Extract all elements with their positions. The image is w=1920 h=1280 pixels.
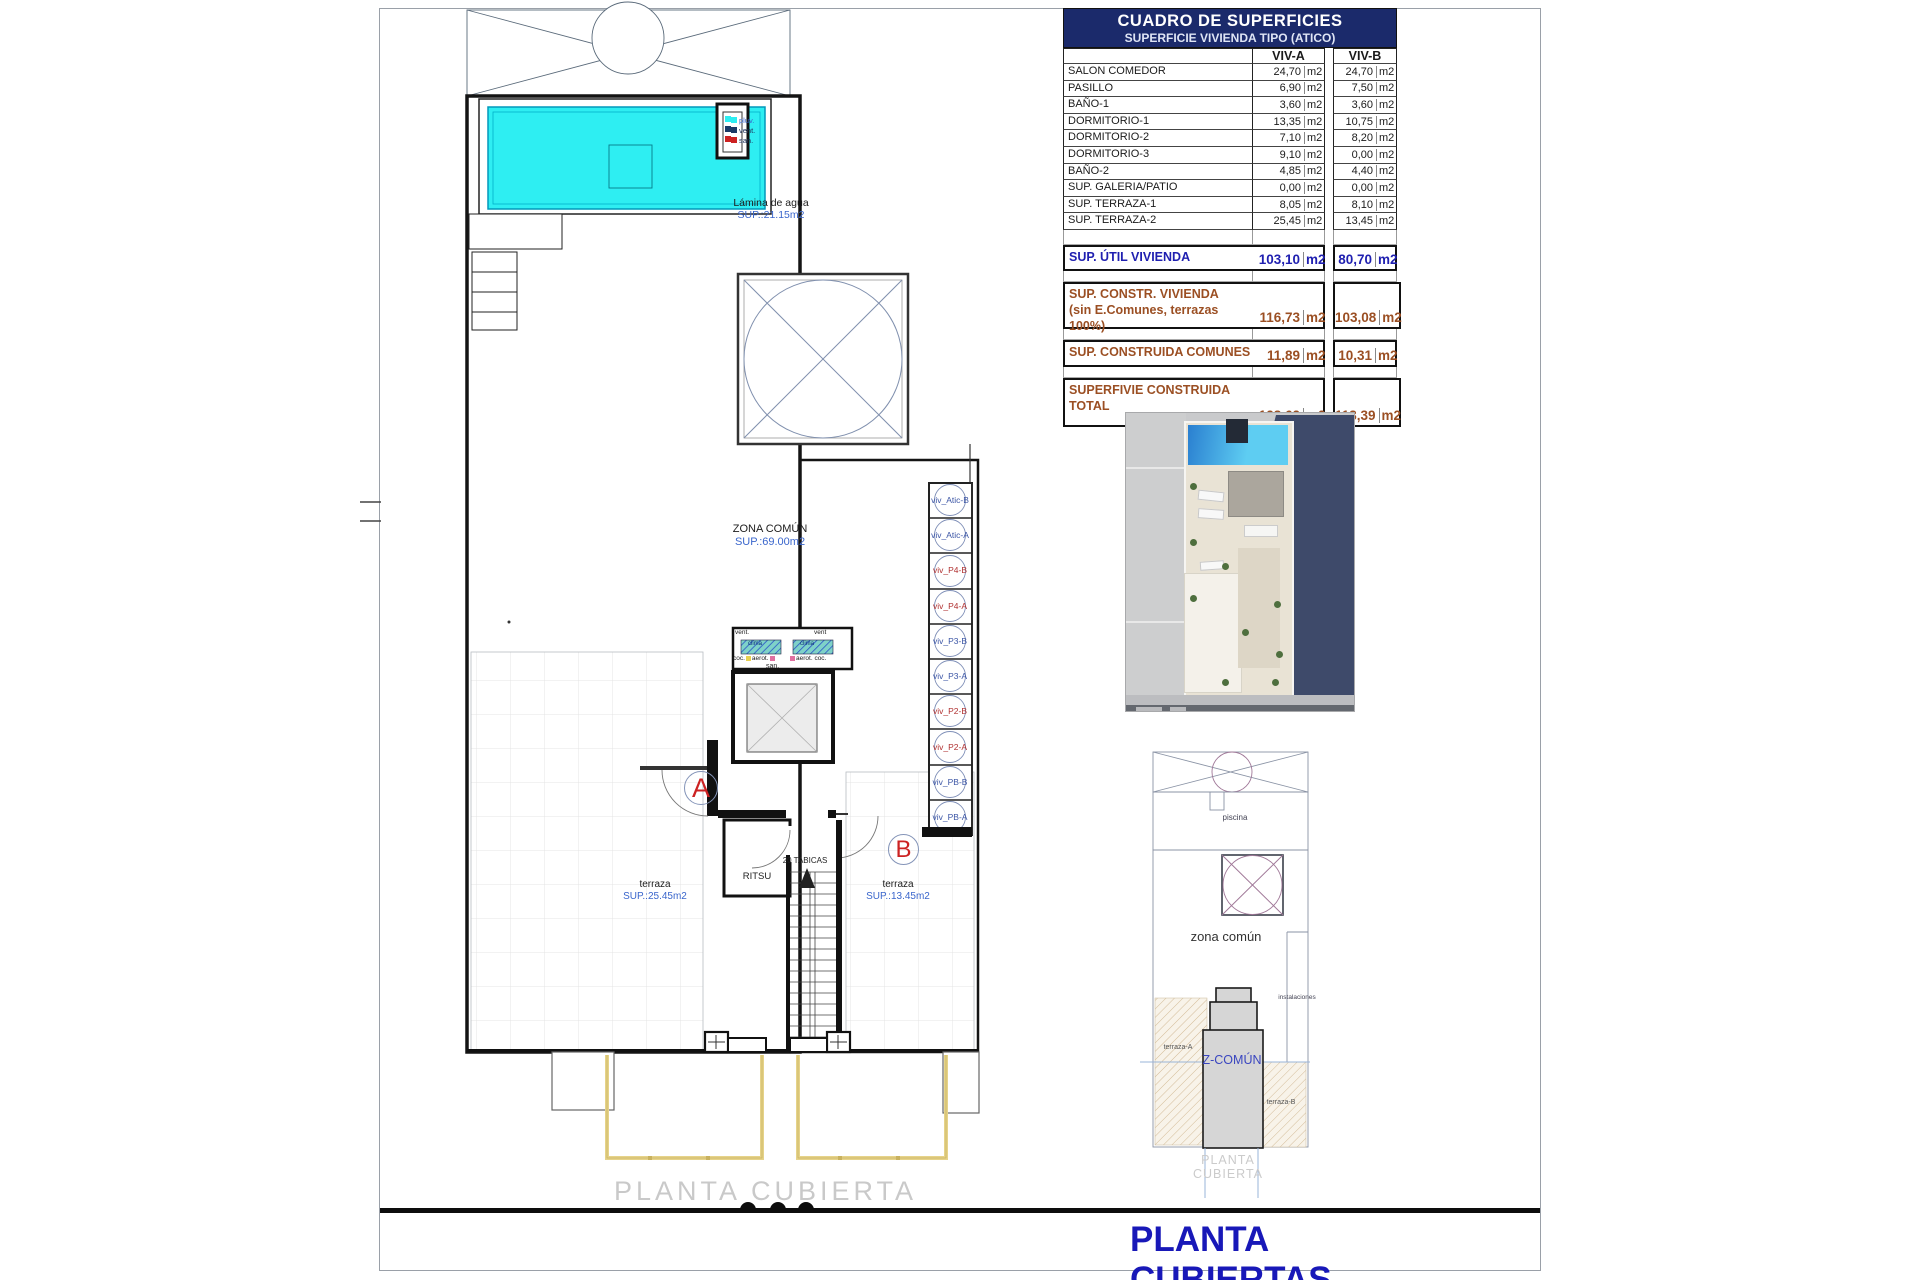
terraza-left-area: SUP.:25.45m2 [595,891,715,903]
strip-label-atic-b: viv_Atic-B [924,495,976,505]
table-spacer [1063,230,1397,245]
pergola-top [467,2,790,96]
render-skylight-box [1228,471,1284,517]
zona-comun-area: SUP.:69.00m2 [705,536,835,549]
render-plant [1274,601,1281,608]
equip-row-left: coc.aerot. [733,655,776,662]
equipment-box [733,628,852,669]
equip-vent-right: vent [814,629,826,636]
strip-label-p2-a: viv_P2-A [924,742,976,752]
terraza-right-area: SUP.:13.45m2 [838,891,958,903]
render-plant [1190,539,1197,546]
mini-terraza-b-label: terraza-B [1253,1099,1309,1107]
table-row: SALON COMEDOR24,70m224,70m2 [1063,64,1397,81]
section-ticks [360,502,381,521]
surface-table: CUADRO DE SUPERFICIES SUPERFICIE VIVIEND… [1063,8,1397,427]
plan-dot [508,621,511,624]
table-row: DORMITORIO-39,10m20,00m2 [1063,147,1397,164]
mini-zcomun-shape [1203,988,1263,1148]
table-row: DORMITORIO-27,10m28,20m2 [1063,130,1397,147]
shaft-legend: pluv. vent. san. [731,115,771,145]
table-row: BAÑO-13,60m23,60m2 [1063,97,1397,114]
equip-aerot-right: aerot. [796,655,813,662]
plan-caption: PLANTA CUBIERTA [593,1176,938,1207]
pool-label-area: SUP.:21.15m2 [706,209,836,221]
table-column-header: VIV-A VIV-B [1063,48,1397,64]
zona-comun-label: ZONA COMÚN SUP.:69.00m2 [705,523,835,548]
strip-label-p3-a: viv_P3-A [924,671,976,681]
render-plant [1222,563,1229,570]
terraza-left-name: terraza [639,879,670,890]
table-subtitle: SUPERFICIE VIVIENDA TIPO (ATICO) [1064,31,1396,45]
table-row: BAÑO-24,85m24,40m2 [1063,164,1397,181]
zona-comun-name: ZONA COMÚN [733,523,808,535]
patio-skylight [738,274,908,444]
mini-terraza-a-label: terraza-A [1150,1044,1206,1052]
pluv-icon [731,117,737,123]
scale-bar-line [380,1208,1540,1213]
terraza-left-tiles [471,652,703,1050]
equip-pink-icon-2 [790,656,795,661]
strip-label-p4-a: viv_P4-A [924,601,976,611]
terraza-right-name: terraza [882,879,913,890]
equip-coc-left: coc. [733,655,745,662]
table-row: SUP. GALERIA/PATIO0,00m20,00m2 [1063,180,1397,197]
vent-icon [731,127,737,133]
terraza-left-label: terraza SUP.:25.45m2 [595,879,715,902]
render-plant [1222,679,1229,686]
render-chimney [1226,419,1248,443]
render-table [1244,525,1278,537]
render-plant [1272,679,1279,686]
render-core-roof [1184,573,1242,693]
mini-piscina-label: piscina [1195,813,1275,822]
equip-coc-right: coc. [814,655,826,662]
section-marker-b: B [888,834,919,865]
col-viv-b: VIV-B [1333,48,1397,64]
equip-yellow-icon [746,656,751,661]
strip-label-pb-a: viv_PB-A [924,812,976,822]
table-spacer [1063,271,1397,282]
equip-clima-right: clima [800,641,814,647]
equip-aerot-left: aerot. [752,655,769,662]
col-viv-a: VIV-A [1253,48,1325,64]
mini-plan-caption: PLANTA CUBIERTA [1168,1153,1288,1182]
strip-label-atic-a: viv_Atic-A [924,530,976,540]
render-tower [1238,548,1280,668]
summary-util-row: SUP. ÚTIL VIVIENDA 103,10m2 80,70m2 [1063,245,1397,271]
table-title: CUADRO DE SUPERFICIES [1064,12,1396,31]
drawing-sheet-page: Lámina de agua SUP.:21.15m2 pluv. vent. … [0,0,1920,1280]
render-plant [1190,483,1197,490]
table-row: SUP. TERRAZA-225,45m213,45m2 [1063,213,1397,230]
render-plant [1276,651,1283,658]
equip-pink-icon [770,656,775,661]
strip-label-p4-b: viv_P4-B [924,565,976,575]
table-row: SUP. TERRAZA-18,05m28,10m2 [1063,197,1397,214]
vent-label: vent. [739,126,755,135]
table-row: PASILLO6,90m27,50m2 [1063,81,1397,98]
elevator [733,672,833,762]
table-row: DORMITORIO-113,35m210,75m2 [1063,114,1397,131]
equip-san: san. [766,663,779,670]
table-spacer [1063,367,1397,378]
equip-row-right: aerot. coc. [789,655,826,662]
render-lounger [1198,508,1225,520]
sheet-title: PLANTA CUBIERTAS [1130,1220,1440,1280]
mini-zcomun-label: Z-COMÚN [1198,1053,1266,1067]
pluv-label: pluv. [739,116,754,125]
summary-constr-row: SUP. CONSTR. VIVIENDA(sin E.Comunes, ter… [1063,282,1397,329]
strip-label-p2-b: viv_P2-B [924,706,976,716]
terraza-right-label: terraza SUP.:13.45m2 [838,879,958,902]
roof-3d-render [1125,412,1355,712]
section-marker-a: A [684,771,718,805]
tabicas-label: 20 TABICAS [770,856,840,865]
pool-label-name: Lámina de agua [733,197,808,209]
mini-instalaciones-label: instalaciones [1272,994,1322,1001]
mini-zona-comun-label: zona común [1166,930,1286,945]
strip-label-p3-b: viv_P3-B [924,636,976,646]
table-spacer [1063,329,1397,340]
balcony-railings [607,1055,946,1160]
san-label: san. [739,136,753,145]
pool-label: Lámina de agua SUP.:21.15m2 [706,197,836,221]
col-empty [1063,48,1253,64]
render-plant [1190,595,1197,602]
render-lounger [1200,560,1225,571]
san-icon [731,137,737,143]
ritsu-label: RITSU [728,872,786,883]
table-header: CUADRO DE SUPERFICIES SUPERFICIE VIVIEND… [1063,8,1397,48]
equip-clima-left: clima [748,641,762,647]
render-plant [1242,629,1249,636]
equip-vent-left: vent. [735,629,749,636]
strip-label-pb-b: viv_PB-B [924,777,976,787]
summary-comunes-row: SUP. CONSTRUIDA COMUNES 11,89m2 10,31m2 [1063,340,1397,367]
